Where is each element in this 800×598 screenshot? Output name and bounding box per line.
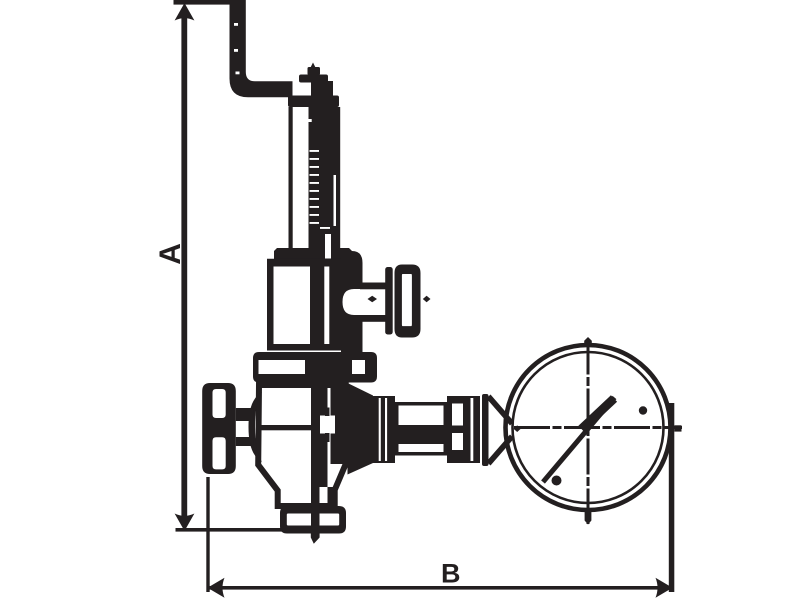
svg-text:B: B	[441, 559, 461, 589]
svg-text:A: A	[154, 243, 187, 265]
